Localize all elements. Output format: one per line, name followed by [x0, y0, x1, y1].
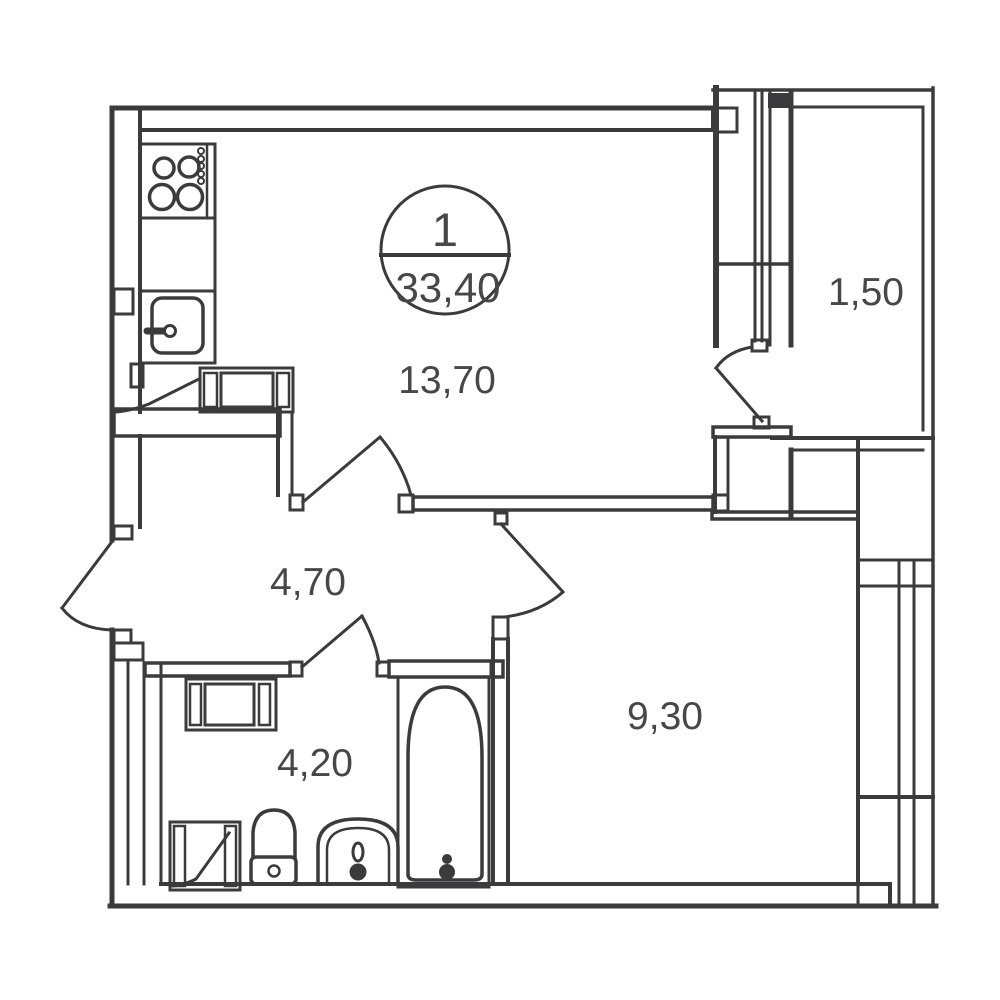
door-jambs	[114, 108, 890, 906]
area-label-bathroom: 4,20	[277, 742, 353, 785]
inner-walls	[128, 107, 933, 905]
kitchen-door-swing	[116, 379, 199, 412]
area-label-loggia: 1,50	[828, 271, 904, 314]
shower-frame	[170, 822, 240, 890]
living-room-door-swing	[303, 437, 411, 502]
stamp-total-area: 33,40	[395, 264, 500, 311]
entrance-door-swing	[62, 539, 114, 630]
washing-machine	[186, 679, 276, 730]
washbasin	[318, 819, 398, 884]
floor-plan-drawing: 1 33,40 13,70 1,50 4,70 4,20 9,30	[0, 0, 1000, 1000]
bathtub	[398, 677, 489, 887]
toilet	[251, 810, 296, 884]
area-label-bedroom: 9,30	[627, 695, 703, 738]
kitchen-sink	[147, 298, 203, 353]
stamp-rooms-count: 1	[432, 203, 458, 256]
wardrobe	[200, 368, 293, 412]
bathroom-door-swing	[302, 616, 379, 667]
area-label-hallway: 4,70	[270, 561, 346, 604]
stove	[140, 144, 215, 218]
bedroom-window	[858, 560, 933, 905]
area-label-kitchen-living-room: 13,70	[398, 359, 496, 402]
bedroom-door-swing	[501, 524, 563, 617]
wall-bars	[114, 409, 858, 677]
loggia-door-swing	[716, 347, 762, 421]
floor-plan-page: 1 33,40 13,70 1,50 4,70 4,20 9,30	[0, 0, 1000, 1000]
